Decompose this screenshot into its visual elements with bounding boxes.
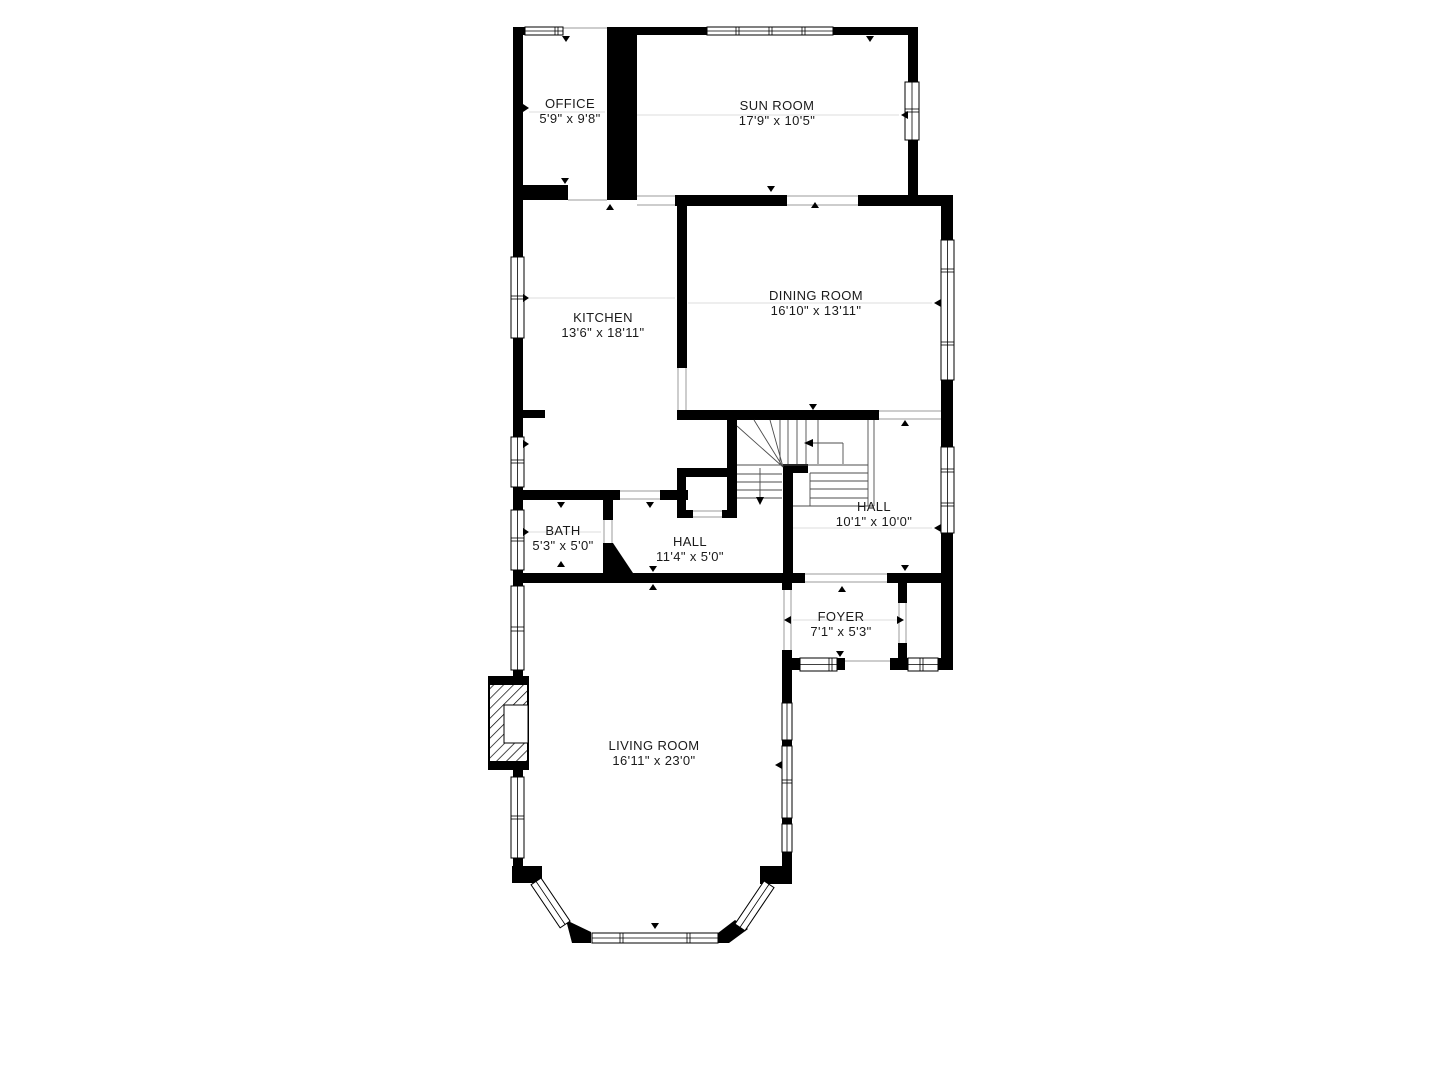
dimension-marker [557, 561, 565, 567]
dimension-marker [523, 294, 529, 302]
room-dims: 5'9" x 9'8" [539, 111, 600, 126]
dimension-marker [838, 586, 846, 592]
stair-up-arrow [804, 439, 813, 447]
room-dims: 10'1" x 10'0" [836, 514, 913, 529]
room-label-hall-upper: HALL 10'1" x 10'0" [836, 499, 913, 529]
dimension-marker [767, 186, 775, 192]
room-dims: 13'6" x 18'11" [561, 325, 644, 340]
window-sunroom-right [905, 82, 919, 140]
window-dining-right [941, 240, 954, 380]
window-hall-right [941, 447, 954, 533]
dimension-marker [557, 502, 565, 508]
window-bay-right-diagonal [735, 881, 774, 931]
dimension-marker [866, 36, 874, 42]
window-bath-left [511, 510, 524, 570]
room-label-bath: BATH 5'3" x 5'0" [532, 523, 593, 553]
room-dims: 17'9" x 10'5" [739, 113, 816, 128]
window-bay-bottom [592, 933, 718, 943]
room-dims: 16'10" x 13'11" [771, 303, 862, 318]
room-label-sun-room: SUN ROOM 17'9" x 10'5" [739, 98, 816, 128]
dimension-marker [934, 524, 941, 532]
room-label-foyer: FOYER 7'1" x 5'3" [810, 609, 871, 639]
dimension-marker [901, 420, 909, 426]
fireplace-firebox [504, 705, 528, 743]
room-name: SUN ROOM [740, 98, 815, 113]
window-living-left-lower [511, 777, 524, 858]
window-office-top [525, 27, 563, 35]
room-dims: 11'4" x 5'0" [656, 549, 724, 564]
room-name: KITCHEN [573, 310, 633, 325]
room-name: FOYER [818, 609, 865, 624]
walls [512, 27, 953, 943]
dimension-marker [523, 440, 529, 448]
dimension-marker [784, 616, 791, 624]
window-sunroom-top [707, 27, 833, 35]
dimension-marker [809, 404, 817, 410]
room-label-office: OFFICE 5'9" x 9'8" [539, 96, 600, 126]
room-label-living-room: LIVING ROOM 16'11" x 23'0" [608, 738, 699, 768]
room-label-dining-room: DINING ROOM 16'10" x 13'11" [769, 288, 863, 318]
dimension-marker [646, 502, 654, 508]
room-label-hall-lower: HALL 11'4" x 5'0" [656, 534, 724, 564]
dimension-marker [606, 204, 614, 210]
window-kitchen-left-lower [511, 437, 524, 487]
room-name: LIVING ROOM [608, 738, 699, 753]
room-dims: 16'11" x 23'0" [612, 753, 695, 768]
room-name: BATH [545, 523, 580, 538]
room-name: HALL [673, 534, 707, 549]
window-living-right-lower [782, 824, 792, 852]
room-name: HALL [857, 499, 891, 514]
window-living-right-middle [782, 746, 792, 818]
dimension-marker [934, 299, 941, 307]
window-living-left-upper [511, 586, 524, 670]
room-dims: 7'1" x 5'3" [810, 624, 871, 639]
staircase [737, 420, 874, 506]
floor-plan-canvas: OFFICE 5'9" x 9'8" SUN ROOM 17'9" x 10'5… [0, 0, 1440, 1080]
dimension-marker [649, 584, 657, 590]
room-label-kitchen: KITCHEN 13'6" x 18'11" [561, 310, 644, 340]
window-bay-left-diagonal [531, 878, 570, 928]
window-foyer-front [800, 658, 837, 671]
dimension-marker [562, 36, 570, 42]
dimension-marker [651, 923, 659, 929]
dimension-marker [897, 616, 904, 624]
dimension-marker [775, 761, 782, 769]
window-entry-front [908, 658, 938, 671]
dimension-marker [523, 104, 529, 112]
dimension-marker [523, 528, 529, 536]
dimension-marker [901, 565, 909, 571]
dimension-marker [561, 178, 569, 184]
room-name: DINING ROOM [769, 288, 863, 303]
window-living-right-upper [782, 703, 792, 740]
window-kitchen-left-upper [511, 257, 524, 338]
stair-down-arrow [756, 497, 764, 505]
room-dims: 5'3" x 5'0" [532, 538, 593, 553]
floor-plan-svg: OFFICE 5'9" x 9'8" SUN ROOM 17'9" x 10'5… [0, 0, 1440, 1080]
dimension-marker [649, 566, 657, 572]
dimension-marker [836, 651, 844, 657]
room-name: OFFICE [545, 96, 595, 111]
fireplace [489, 677, 528, 769]
